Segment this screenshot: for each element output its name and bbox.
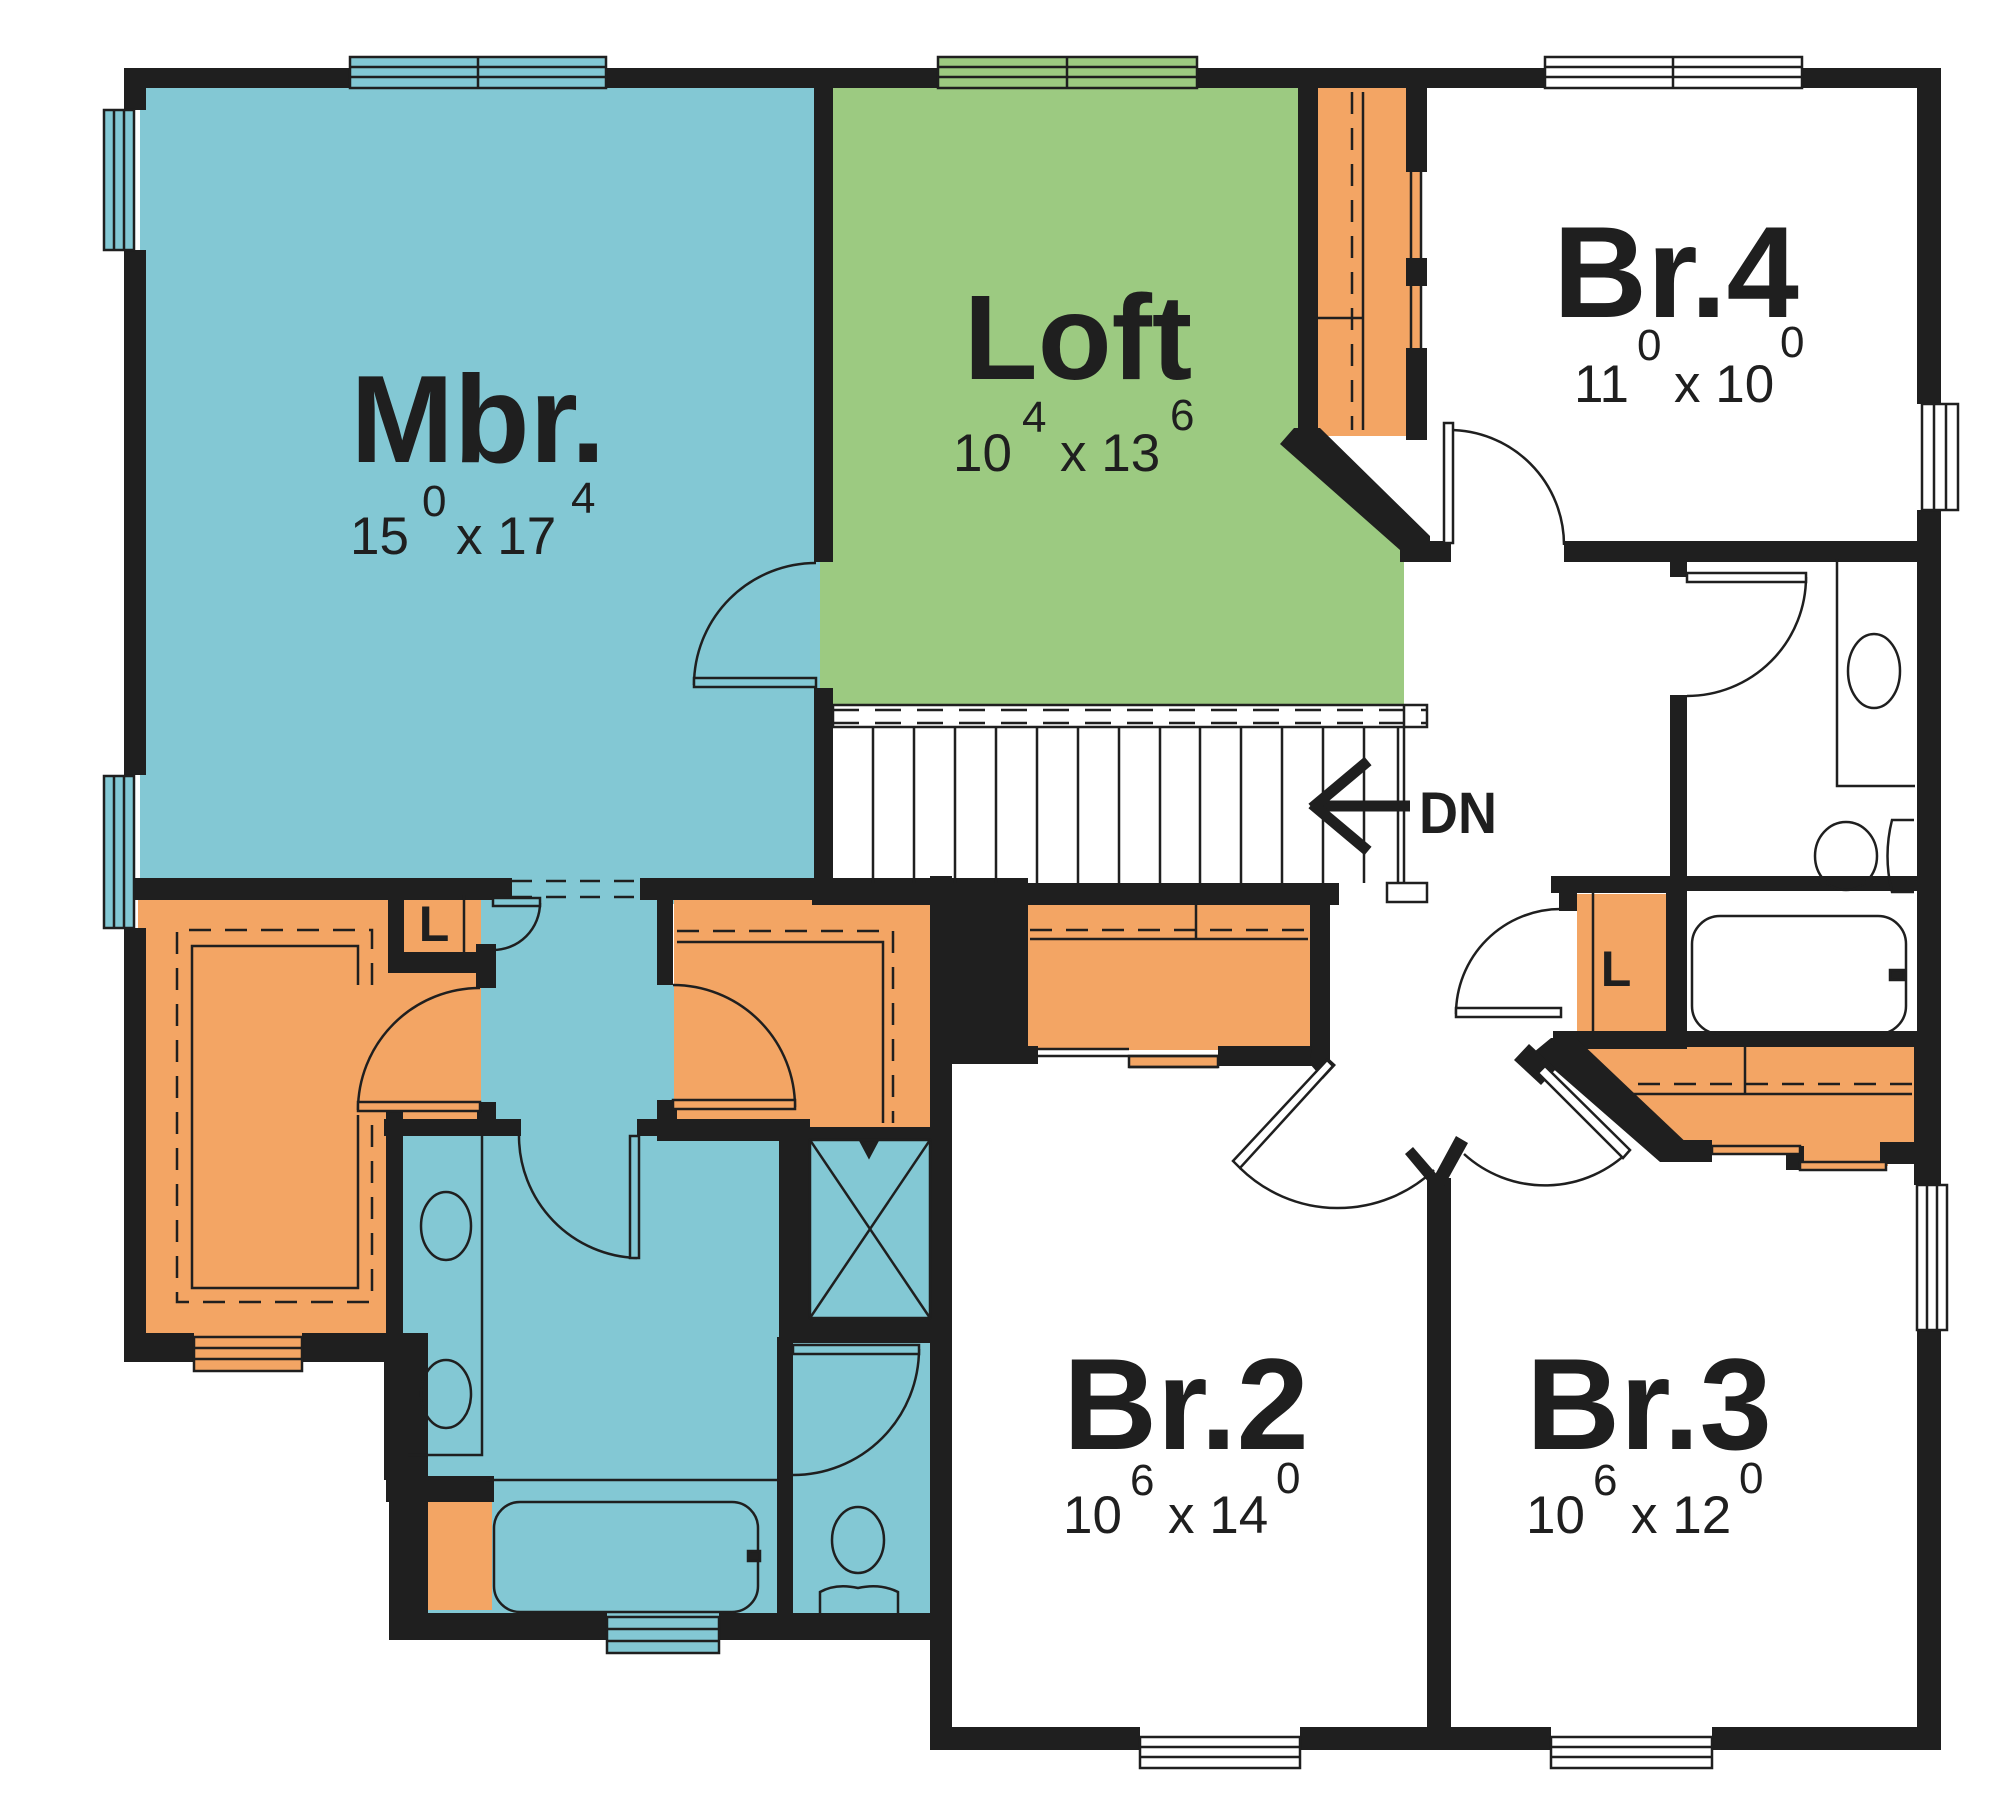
svg-text:Br.2: Br.2 [1063,1331,1309,1477]
svg-text:0: 0 [1637,321,1661,370]
svg-text:x 13: x 13 [1060,424,1160,483]
svg-text:L: L [419,896,450,952]
svg-text:0: 0 [1780,318,1804,367]
svg-text:4: 4 [571,474,595,523]
svg-text:x 17: x 17 [456,507,556,566]
svg-text:Loft: Loft [964,269,1192,405]
svg-text:0: 0 [1739,1454,1763,1503]
svg-text:15: 15 [350,507,409,566]
svg-text:x 12: x 12 [1631,1486,1731,1545]
svg-text:Br.3: Br.3 [1526,1331,1772,1477]
svg-text:6: 6 [1130,1456,1154,1505]
svg-text:11: 11 [1574,355,1629,414]
svg-text:6: 6 [1170,391,1194,440]
svg-text:L: L [1601,941,1632,997]
svg-text:4: 4 [1022,393,1046,442]
svg-text:6: 6 [1593,1456,1617,1505]
svg-text:10: 10 [1063,1486,1122,1545]
svg-text:x 14: x 14 [1168,1486,1268,1545]
svg-text:10: 10 [1526,1486,1585,1545]
svg-text:Mbr.: Mbr. [351,351,606,489]
svg-text:0: 0 [1276,1454,1300,1503]
svg-text:0: 0 [422,477,446,526]
svg-text:x 10: x 10 [1674,355,1774,414]
svg-text:10: 10 [953,424,1012,483]
svg-text:Br.4: Br.4 [1553,199,1799,345]
svg-text:DN: DN [1419,781,1497,846]
